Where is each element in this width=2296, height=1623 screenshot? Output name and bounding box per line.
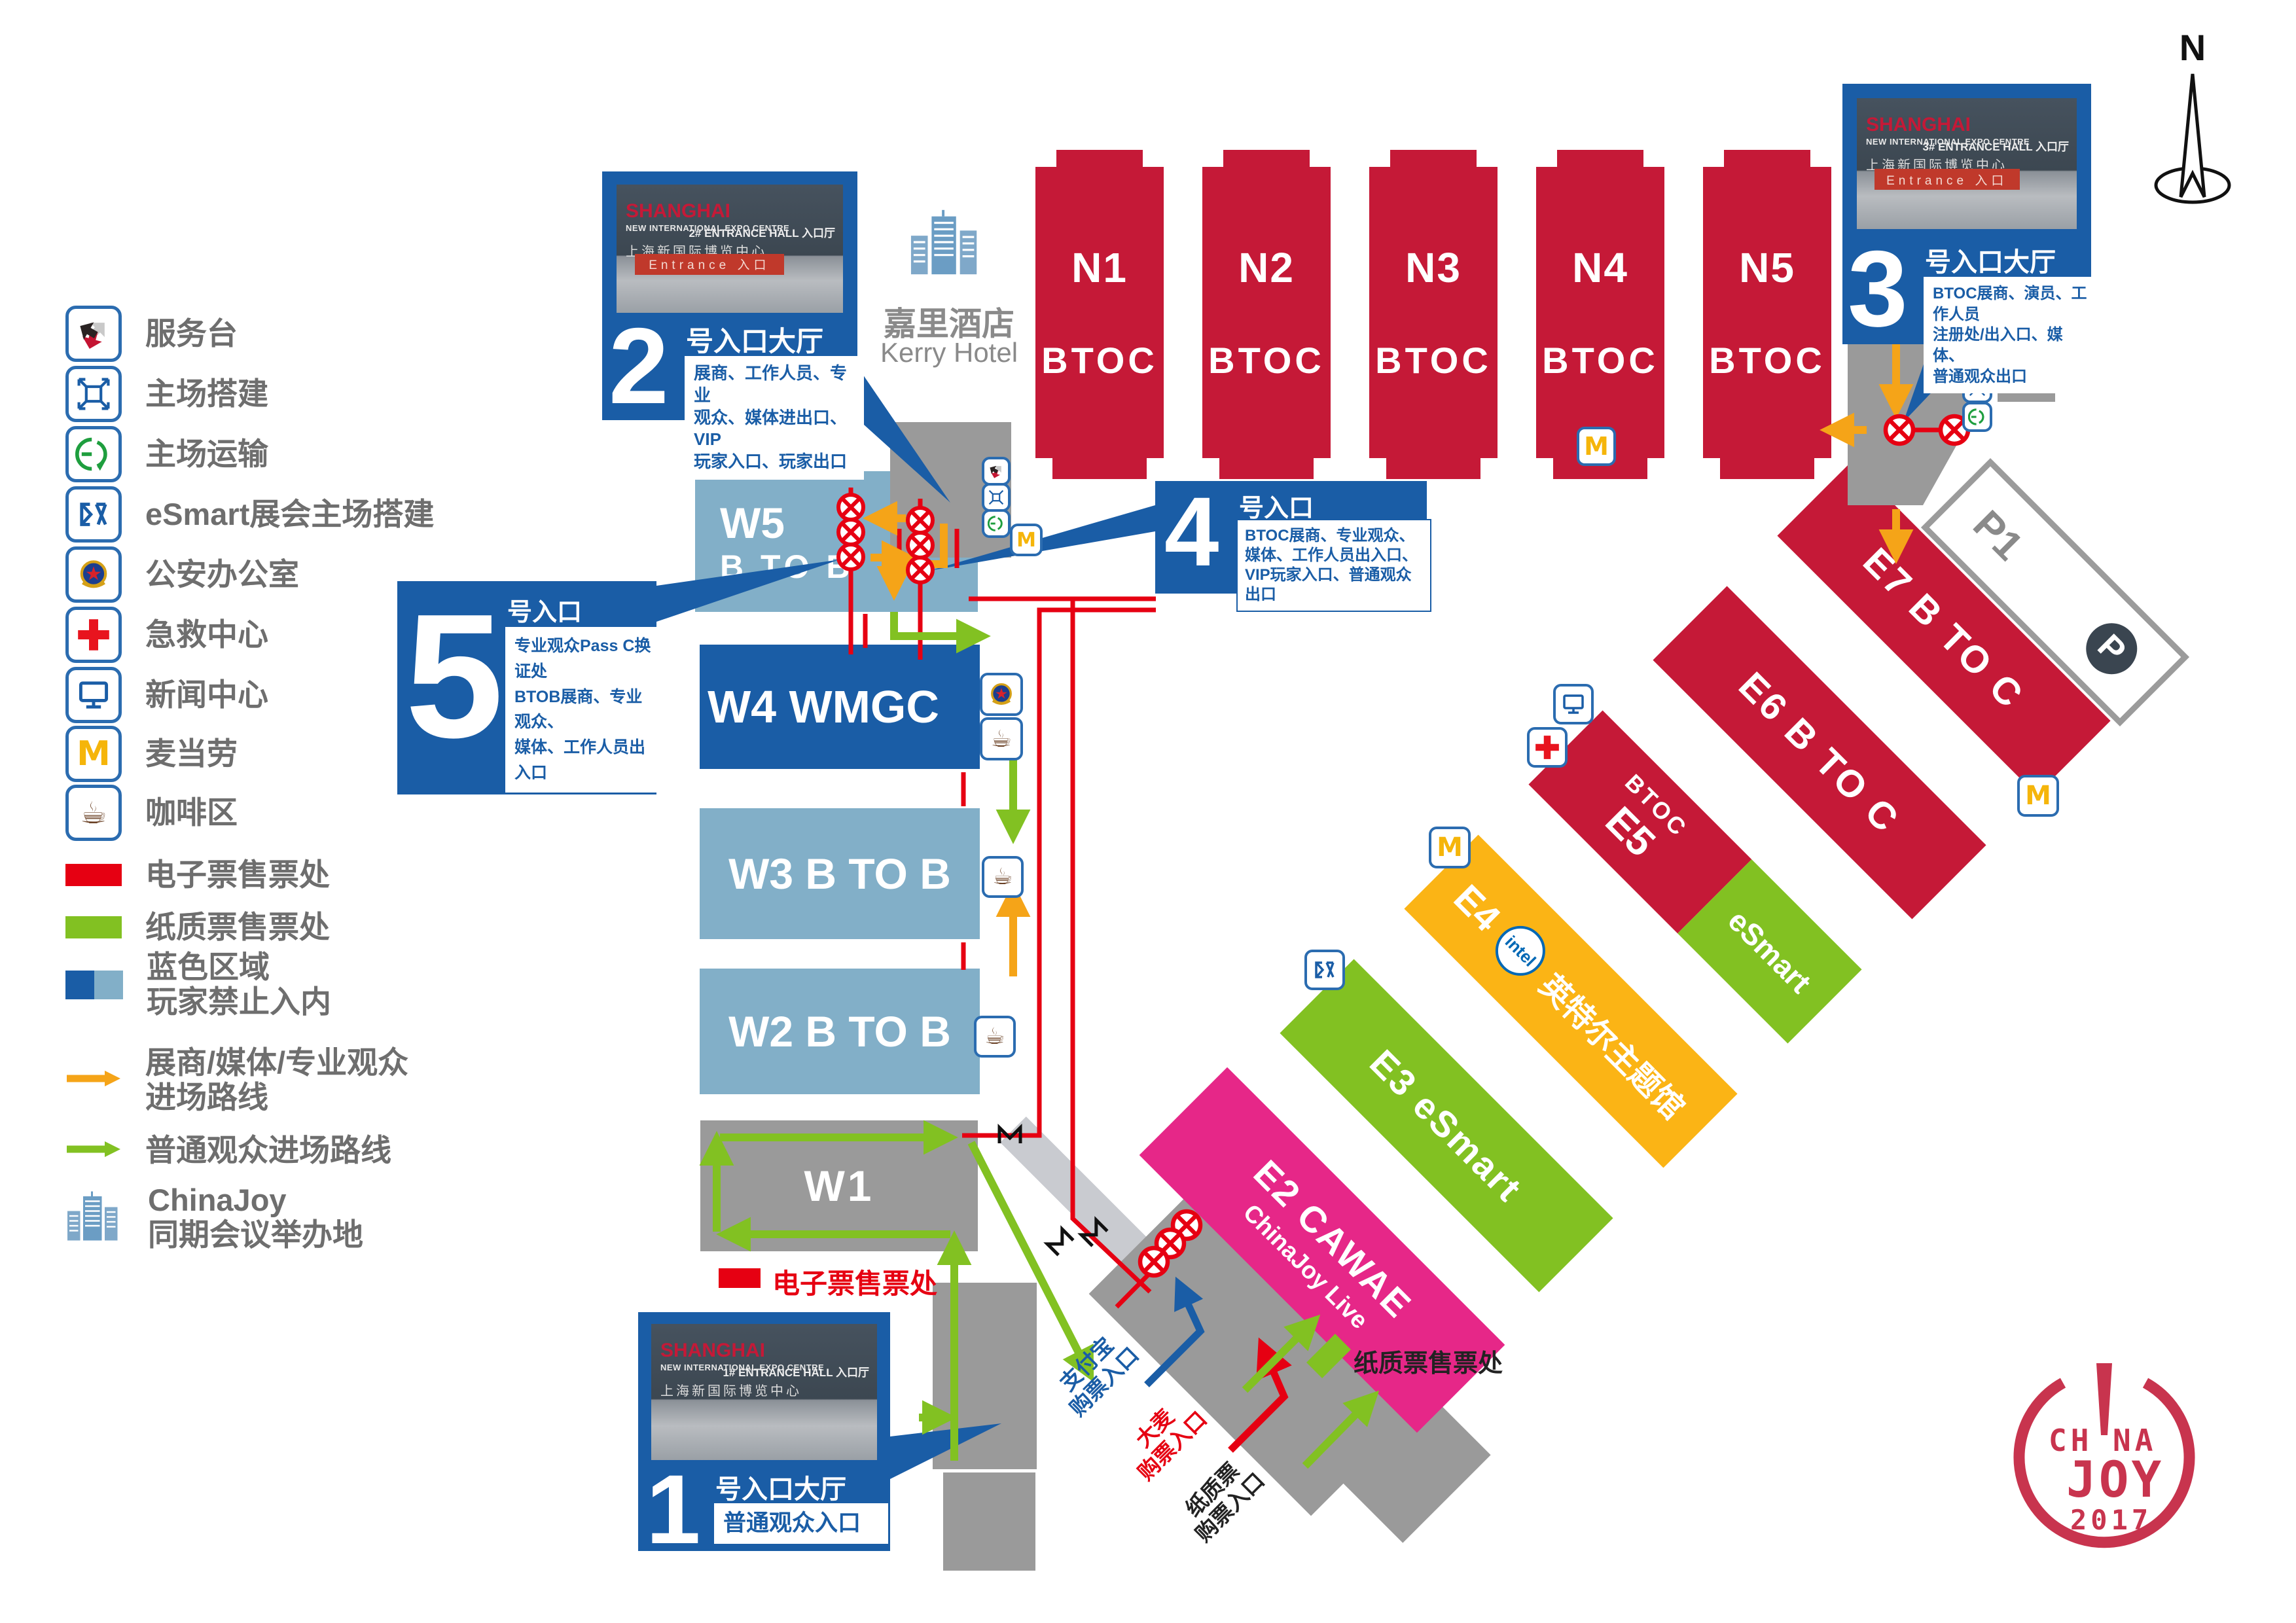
photo-entrance-banner: Entrance 入口 bbox=[1874, 169, 2020, 190]
entrance-description: BTOC展商、专业观众、媒体、工作人员出入口、VIP玩家入口、普通观众出口 bbox=[1238, 520, 1430, 611]
entrance3-callout: SHANGHAINEW INTERNATIONAL EXPO CENTRE 上海… bbox=[1842, 84, 2091, 344]
legend-item-news-center: 新闻中心 bbox=[65, 667, 268, 723]
chinajoy-building-icon bbox=[65, 1189, 124, 1246]
hall-n5: N5 BTOC bbox=[1703, 167, 1831, 458]
orange-route-arrow bbox=[65, 1069, 122, 1092]
legend-item-venue-transport: 主场运输 bbox=[65, 426, 268, 482]
eticket-swatch bbox=[65, 864, 122, 886]
hall-subtitle: eSmart bbox=[1721, 903, 1818, 1000]
entrance-title: 号入口大厅 bbox=[715, 1468, 846, 1506]
legend-item-paper-ticket: 纸质票售票处 bbox=[65, 910, 330, 945]
legend-item-chinajoy-conference: ChinaJoy同期会议举办地 bbox=[65, 1183, 363, 1252]
esmart-icon bbox=[1304, 950, 1345, 990]
news-center-icon bbox=[1553, 684, 1594, 724]
entrance-description: BTOC展商、演员、工作人员注册处/出入口、媒体、普通观众出口 bbox=[1924, 277, 2099, 393]
entrance-description: 展商、工作人员、专业观众、媒体进出口、VIP玩家入口、玩家出口 bbox=[685, 356, 864, 480]
venue-transport-icon bbox=[982, 509, 1011, 538]
service-desk-icon bbox=[65, 306, 122, 362]
entrance-number: 3 bbox=[1848, 240, 1908, 339]
legend-label: 主场搭建 bbox=[145, 377, 268, 412]
legend-label: 公安办公室 bbox=[145, 558, 299, 592]
eticket-office-label: 电子票售票处 bbox=[772, 1262, 937, 1302]
compass: N bbox=[2147, 26, 2238, 242]
entrance-number: 5 bbox=[405, 596, 503, 758]
entrance-title: 号入口 bbox=[507, 592, 582, 628]
entrance1-callout: SHANGHAINEW INTERNATIONAL EXPO CENTRE 上海… bbox=[638, 1312, 890, 1551]
hall-name: N1 bbox=[1071, 243, 1128, 292]
intel-logo: intel bbox=[1486, 916, 1556, 986]
hall-n1: N1 BTOC bbox=[1035, 167, 1164, 458]
legend-item-green-route: 普通观众进场路线 bbox=[65, 1133, 391, 1168]
police-office-icon bbox=[65, 546, 122, 603]
first-aid-icon bbox=[65, 607, 122, 663]
svg-text:JOY: JOY bbox=[2066, 1450, 2164, 1508]
news-center-icon bbox=[65, 667, 122, 723]
entrance-number: 1 bbox=[646, 1464, 700, 1554]
entrance-number: 4 bbox=[1164, 486, 1219, 577]
entrance1-building bbox=[933, 1283, 1037, 1469]
hall-w4: W4 WMGC bbox=[700, 645, 980, 769]
venue-transport-icon bbox=[1962, 402, 1992, 432]
hall-name: W4 WMGC bbox=[708, 681, 972, 733]
hall-name: N5 bbox=[1739, 243, 1795, 292]
hall-w3: W3 B TO B bbox=[700, 808, 980, 939]
mcdonalds-icon: M bbox=[65, 726, 122, 782]
legend-label: ChinaJoy同期会议举办地 bbox=[148, 1183, 363, 1252]
hall-name: E4 bbox=[1445, 876, 1509, 940]
hall-subtitle: 英特尔主题馆 bbox=[1532, 962, 1697, 1128]
first-aid-icon bbox=[1527, 727, 1568, 768]
legend-item-coffee: ☕ 咖啡区 bbox=[65, 785, 238, 841]
entrance4-callout: 4 号入口 BTOC展商、专业观众、媒体、工作人员出入口、VIP玩家入口、普通观… bbox=[1155, 481, 1427, 594]
coffee-icon: ☕ bbox=[980, 717, 1023, 760]
hall-type: B TO B bbox=[720, 548, 854, 586]
hall-type: BTOC bbox=[1709, 339, 1825, 382]
coffee-icon: ☕ bbox=[982, 856, 1024, 898]
alipay-entrance-label: 支付宝购票入口 bbox=[1048, 1325, 1144, 1421]
coffee-icon: ☕ bbox=[974, 1016, 1016, 1058]
service-desk-icon bbox=[982, 457, 1011, 486]
paper-ticket-office-label: 纸质票售票处 bbox=[1354, 1343, 1503, 1379]
legend-label: 咖啡区 bbox=[145, 796, 238, 830]
legend-item-venue-construction: 主场搭建 bbox=[65, 366, 268, 422]
mcdonalds-icon: M bbox=[1010, 524, 1043, 556]
legend-item-blue-zone: 蓝色区域玩家禁止入内 bbox=[65, 950, 331, 1019]
blue-zone-swatches bbox=[65, 971, 123, 999]
entrance1-photo: SHANGHAINEW INTERNATIONAL EXPO CENTRE 上海… bbox=[651, 1324, 877, 1460]
venue-transport-icon bbox=[65, 426, 122, 482]
legend-item-service-desk: 服务台 bbox=[65, 306, 238, 362]
compass-label: N bbox=[2147, 26, 2238, 69]
entrance5-callout: 5 号入口 专业观众Pass C换证处BTOB展商、专业观众、媒体、工作人员出入… bbox=[397, 581, 656, 794]
photo-brand-zh: 上海新国际博览中心 bbox=[660, 1380, 802, 1399]
hall-w1: W1 bbox=[700, 1120, 978, 1251]
hall-name: E3 eSmart bbox=[1362, 1041, 1532, 1211]
chinajoy-2017-logo: CH NA JOY 2017 bbox=[2003, 1358, 2206, 1571]
legend-item-orange-route: 展商/媒体/专业观众进场路线 bbox=[65, 1046, 408, 1115]
mcdonalds-icon: M bbox=[1577, 427, 1616, 466]
hall-type: BTOC bbox=[1542, 339, 1659, 382]
entrance1-annex-building bbox=[943, 1472, 1035, 1571]
hall-type: BTOC bbox=[1375, 339, 1492, 382]
entrance-description: 普通观众入口 bbox=[714, 1503, 888, 1544]
hall-w2: W2 B TO B bbox=[700, 969, 980, 1094]
entrance-title: 号入口大厅 bbox=[1925, 241, 2056, 279]
esmart-icon bbox=[65, 486, 122, 543]
hall-name: N4 bbox=[1572, 243, 1628, 292]
north-arrow-icon bbox=[2147, 69, 2238, 239]
crosswalk bbox=[1848, 417, 1884, 433]
legend-item-police: 公安办公室 bbox=[65, 546, 299, 603]
legend-label: 纸质票售票处 bbox=[145, 910, 330, 945]
paper-ticket-swatch bbox=[65, 916, 122, 938]
hall-n3: N3 BTOC bbox=[1369, 167, 1498, 458]
photo-hall-label: 2# ENTRANCE HALL 入口厅 bbox=[689, 224, 835, 240]
legend-label: 服务台 bbox=[145, 317, 238, 351]
kerry-hotel-icon bbox=[908, 193, 986, 294]
legend-label: eSmart展会主场搭建 bbox=[145, 497, 434, 532]
hall-name: N3 bbox=[1405, 243, 1462, 292]
hall-type: BTOC bbox=[1208, 339, 1325, 382]
hall-name: N2 bbox=[1238, 243, 1295, 292]
hall-type: BTOC bbox=[1041, 339, 1158, 382]
hall-n4: N4 BTOC bbox=[1536, 167, 1664, 458]
legend-label: 麦当劳 bbox=[145, 737, 238, 772]
hall-name: W2 B TO B bbox=[728, 1007, 951, 1056]
legend-label: 展商/媒体/专业观众进场路线 bbox=[145, 1046, 408, 1115]
legend-label: 新闻中心 bbox=[145, 678, 268, 713]
entrance2-callout: SHANGHAINEW INTERNATIONAL EXPO CENTRE 上海… bbox=[602, 171, 857, 420]
venue-construction-icon bbox=[982, 483, 1011, 512]
legend-item-first-aid: 急救中心 bbox=[65, 607, 268, 663]
legend-label: 电子票售票处 bbox=[145, 858, 330, 893]
legend-item-mcdonalds: M 麦当劳 bbox=[65, 726, 238, 782]
hall-name: W1 bbox=[804, 1161, 874, 1211]
mcdonalds-icon: M bbox=[1429, 827, 1471, 868]
legend-item-eticket: 电子票售票处 bbox=[65, 858, 330, 893]
entrance-number: 2 bbox=[609, 317, 669, 416]
legend-item-esmart-construction: eSmart展会主场搭建 bbox=[65, 486, 434, 543]
police-office-icon bbox=[980, 673, 1023, 716]
photo-hall-label: 3# ENTRANCE HALL 入口厅 bbox=[1922, 137, 2069, 154]
hall-n2: N2 BTOC bbox=[1202, 167, 1331, 458]
entrance3-photo: SHANGHAINEW INTERNATIONAL EXPO CENTRE 上海… bbox=[1857, 98, 2077, 229]
hall-name: E6 B TO C bbox=[1731, 664, 1909, 842]
green-route-arrow bbox=[65, 1139, 122, 1162]
paper-entrance-label: 纸质票购票入口 bbox=[1174, 1450, 1270, 1546]
photo-hall-label: 1# ENTRANCE HALL 入口厅 bbox=[723, 1363, 869, 1380]
kerry-hotel-name-en: Kerry Hotel bbox=[864, 337, 1034, 368]
venue-construction-icon bbox=[65, 366, 122, 422]
entrance-description: 专业观众Pass C换证处BTOB展商、专业观众、媒体、工作人员出入口 bbox=[505, 627, 664, 793]
legend-label: 普通观众进场路线 bbox=[145, 1133, 391, 1168]
eticket-swatch bbox=[719, 1268, 761, 1288]
parking-badge-dark: P bbox=[2075, 613, 2147, 685]
parking-name: P1 bbox=[1964, 501, 2032, 569]
legend-label: 蓝色区域玩家禁止入内 bbox=[147, 950, 331, 1019]
damai-entrance-label: 大麦购票入口 bbox=[1116, 1389, 1212, 1485]
hall-name: W5 bbox=[720, 498, 785, 548]
coffee-icon: ☕ bbox=[65, 785, 122, 841]
svg-text:2017: 2017 bbox=[2070, 1504, 2152, 1536]
legend-label: 主场运输 bbox=[145, 437, 268, 472]
mcdonalds-icon: M bbox=[2017, 775, 2059, 817]
legend-label: 急救中心 bbox=[145, 618, 268, 652]
entrance2-photo: SHANGHAINEW INTERNATIONAL EXPO CENTRE 上海… bbox=[617, 185, 843, 313]
photo-entrance-banner: Entrance 入口 bbox=[635, 254, 784, 275]
entrance-title: 号入口大厅 bbox=[686, 319, 823, 359]
chinajoy-2017-venue-map: 服务台 主场搭建 主场运输 eSmart展会主场搭建 公安办公室 急救中心 新闻… bbox=[0, 0, 2296, 1623]
hall-name: W3 B TO B bbox=[728, 849, 951, 899]
entrance-title: 号入口 bbox=[1239, 488, 1314, 524]
